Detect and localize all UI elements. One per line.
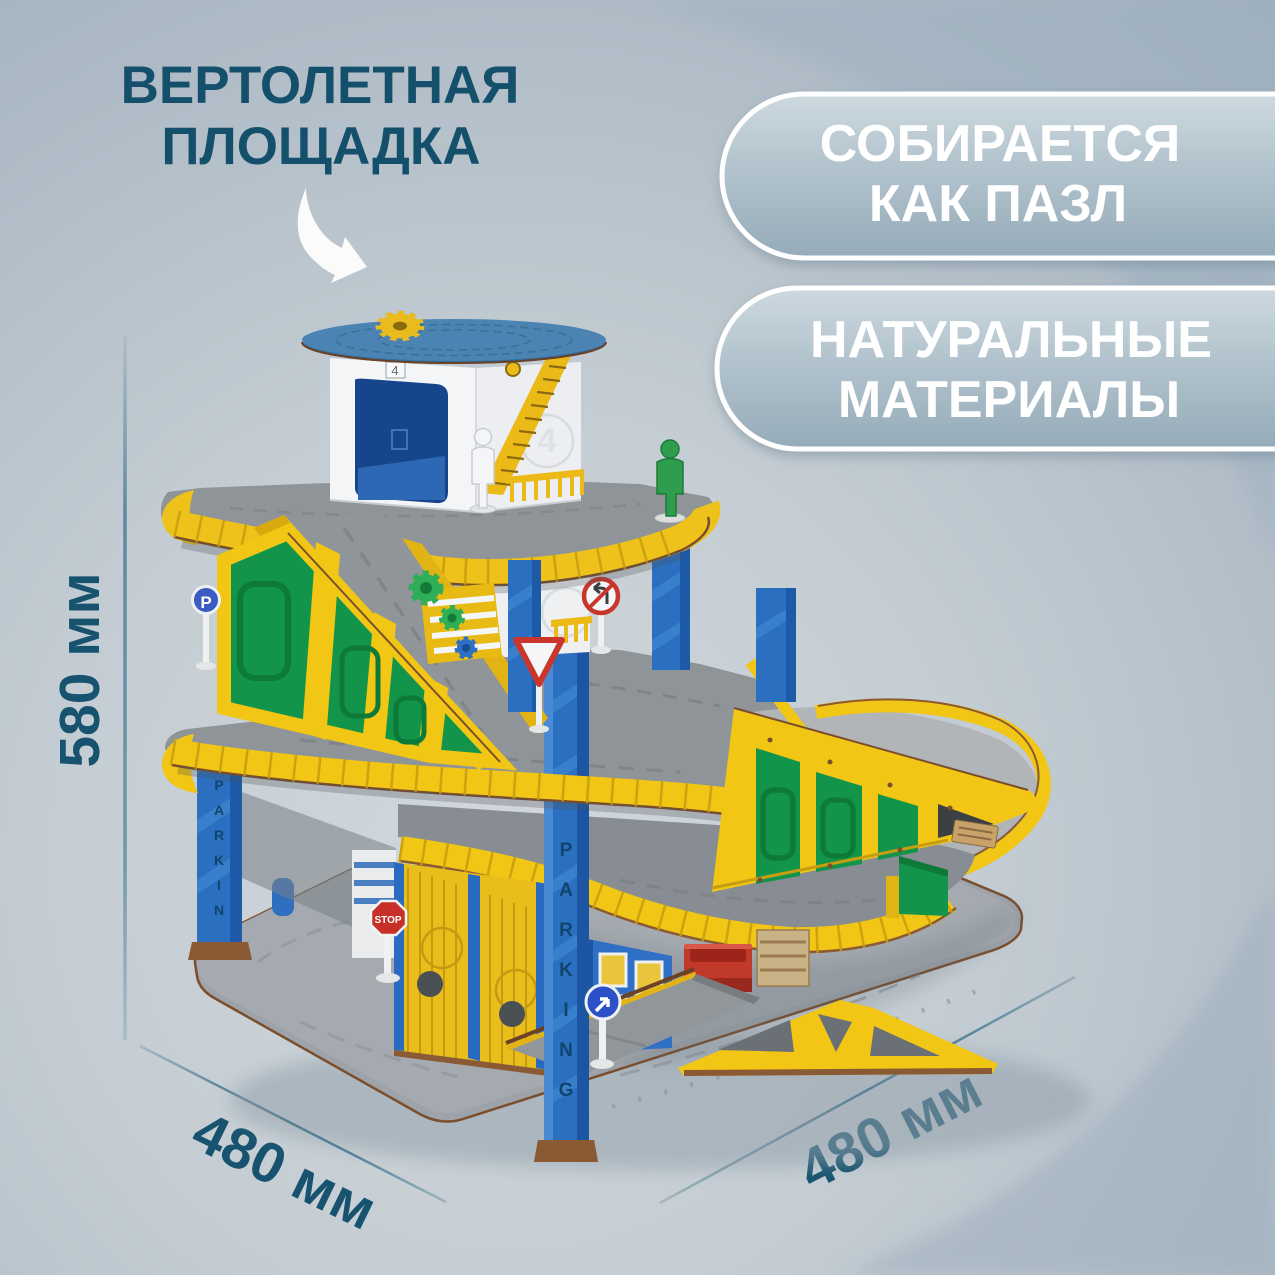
svg-text:R: R (214, 827, 224, 843)
svg-text:P: P (200, 593, 211, 612)
svg-text:4: 4 (391, 363, 398, 378)
svg-text:580 мм: 580 мм (48, 572, 112, 767)
svg-text:N: N (214, 902, 224, 918)
svg-text:I: I (563, 1000, 568, 1021)
svg-text:МАТЕРИАЛЫ: МАТЕРИАЛЫ (838, 371, 1180, 429)
svg-text:A: A (214, 802, 224, 818)
svg-text:K: K (214, 852, 224, 868)
svg-text:4: 4 (538, 422, 557, 460)
svg-text:G: G (559, 1080, 574, 1101)
svg-text:R: R (559, 920, 573, 941)
svg-text:ВЕРТОЛЕТНАЯ: ВЕРТОЛЕТНАЯ (121, 56, 520, 115)
svg-text:P: P (560, 840, 573, 861)
svg-text:НАТУРАЛЬНЫЕ: НАТУРАЛЬНЫЕ (810, 311, 1212, 369)
svg-text:ПЛОЩАДКА: ПЛОЩАДКА (161, 117, 480, 176)
svg-text:K: K (559, 960, 573, 981)
svg-text:I: I (217, 877, 221, 893)
svg-text:N: N (559, 1040, 573, 1061)
svg-text:СОБИРАЕТСЯ: СОБИРАЕТСЯ (820, 115, 1181, 173)
svg-text:STOP: STOP (374, 915, 401, 926)
svg-text:КАК ПАЗЛ: КАК ПАЗЛ (869, 175, 1127, 233)
svg-text:A: A (559, 880, 573, 901)
